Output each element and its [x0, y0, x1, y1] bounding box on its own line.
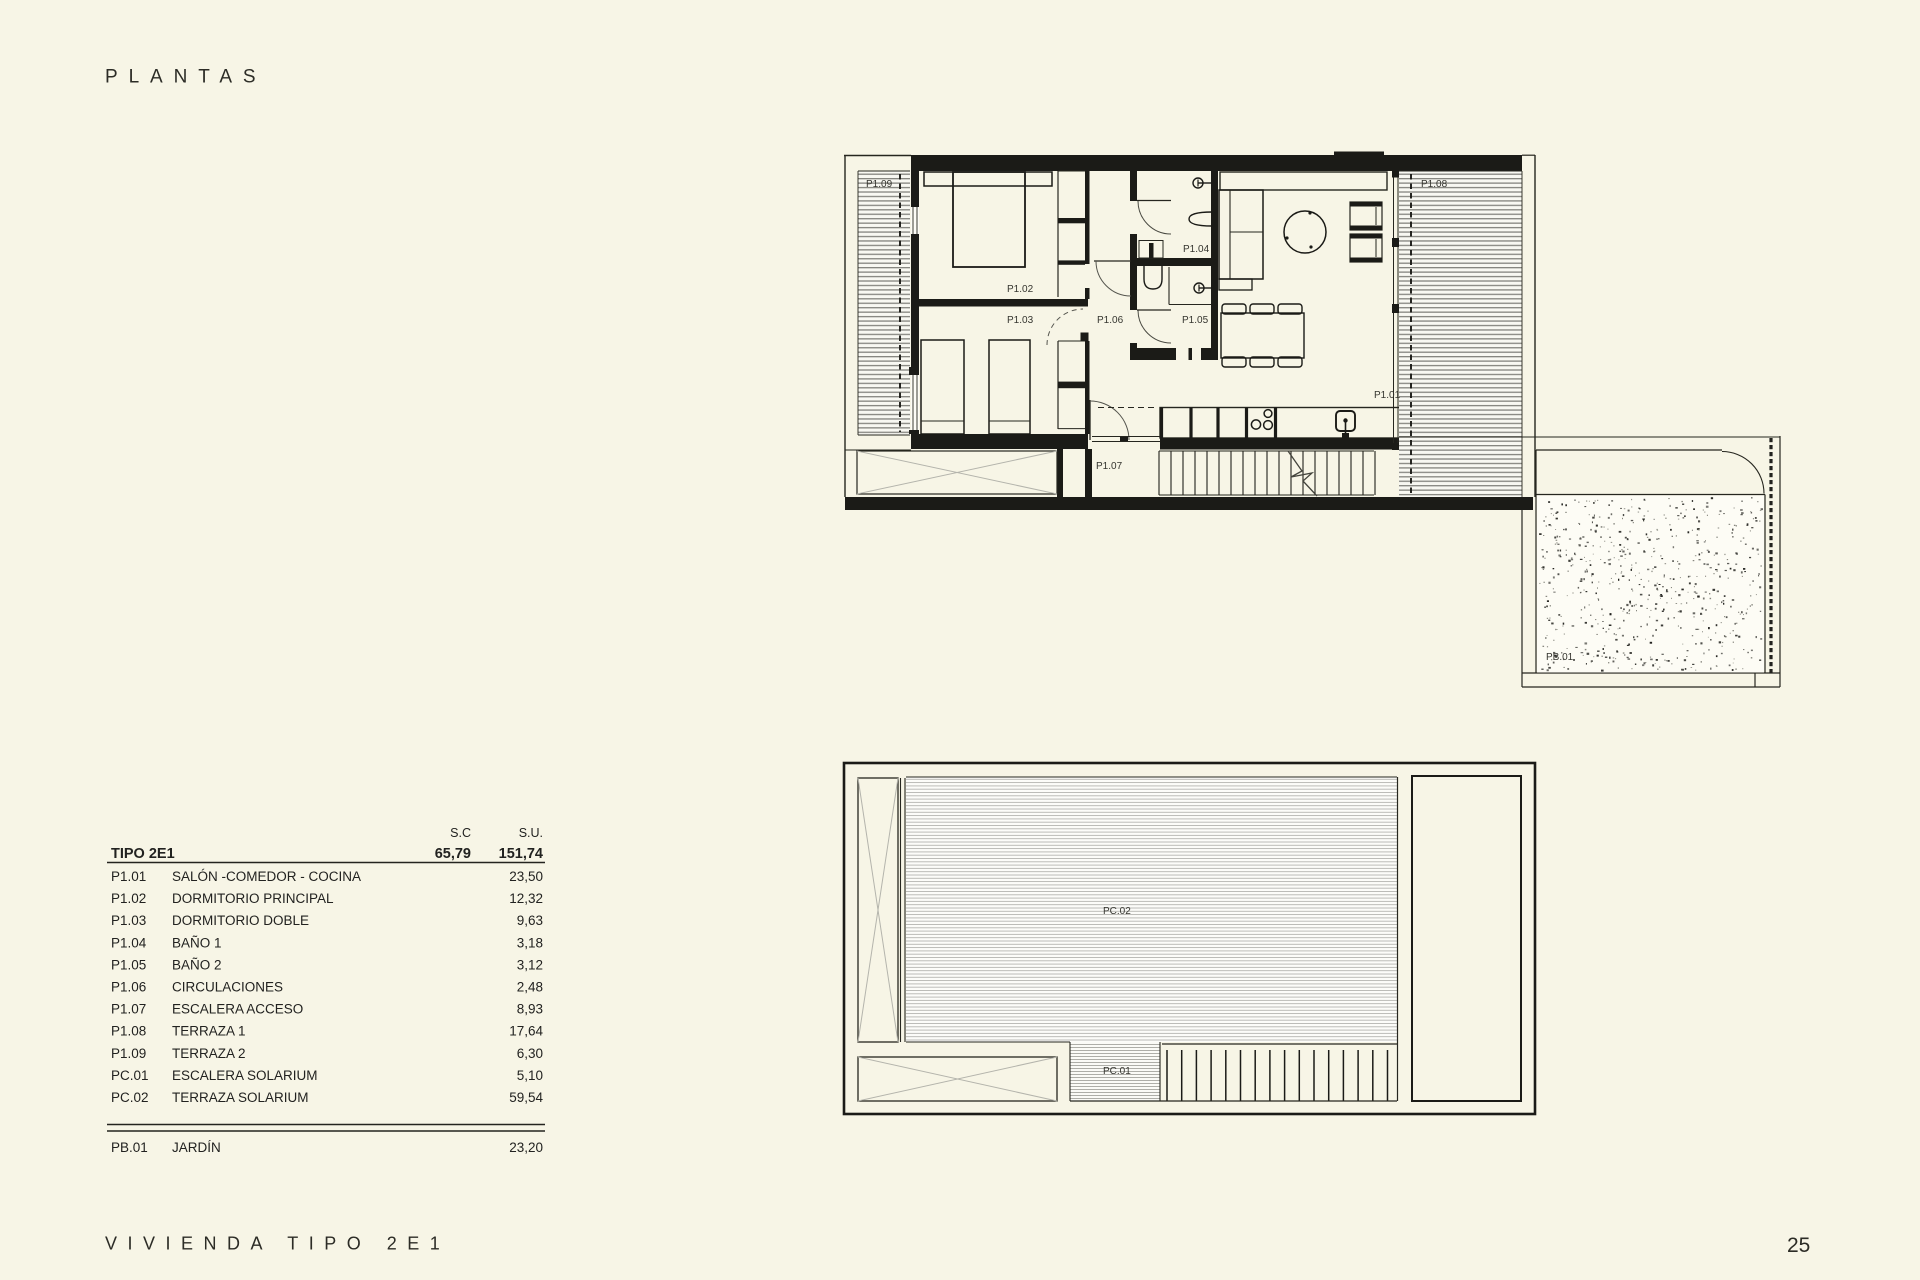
svg-text:BAÑO 2: BAÑO 2 [172, 957, 222, 972]
svg-text:9,63: 9,63 [517, 913, 543, 928]
svg-text:P1.05: P1.05 [1182, 315, 1209, 326]
svg-text:P1.06: P1.06 [1097, 315, 1124, 326]
svg-text:VIVIENDA TIPO 2E1: VIVIENDA TIPO 2E1 [105, 1234, 450, 1254]
svg-text:JARDÍN: JARDÍN [172, 1140, 221, 1155]
svg-text:6,30: 6,30 [517, 1046, 543, 1061]
svg-text:2,48: 2,48 [517, 980, 543, 995]
svg-text:TERRAZA SOLARIUM: TERRAZA SOLARIUM [172, 1090, 309, 1105]
svg-text:8,93: 8,93 [517, 1002, 543, 1017]
svg-text:P1.07: P1.07 [111, 1002, 146, 1017]
svg-text:23,50: 23,50 [509, 869, 543, 884]
svg-text:P1.04: P1.04 [111, 935, 147, 950]
svg-text:S.C: S.C [450, 826, 471, 840]
svg-text:CIRCULACIONES: CIRCULACIONES [172, 980, 283, 995]
svg-text:12,32: 12,32 [509, 891, 543, 906]
svg-text:25: 25 [1787, 1234, 1810, 1257]
svg-text:PB.01: PB.01 [1546, 652, 1574, 663]
svg-text:PC.01: PC.01 [111, 1068, 149, 1083]
svg-text:P1.03: P1.03 [1007, 315, 1034, 326]
svg-text:P1.09: P1.09 [111, 1046, 146, 1061]
svg-text:DORMITORIO PRINCIPAL: DORMITORIO PRINCIPAL [172, 891, 334, 906]
svg-text:P1.08: P1.08 [111, 1024, 146, 1039]
svg-text:P1.02: P1.02 [1007, 284, 1034, 295]
svg-text:P1.05: P1.05 [111, 957, 146, 972]
svg-text:P1.02: P1.02 [111, 891, 146, 906]
svg-text:P1.08: P1.08 [1421, 179, 1448, 190]
svg-text:3,12: 3,12 [517, 957, 543, 972]
svg-text:ESCALERA SOLARIUM: ESCALERA SOLARIUM [172, 1068, 318, 1083]
svg-text:5,10: 5,10 [517, 1068, 543, 1083]
svg-text:17,64: 17,64 [509, 1024, 543, 1039]
svg-text:BAÑO 1: BAÑO 1 [172, 935, 222, 950]
svg-text:SALÓN -COMEDOR - COCINA: SALÓN -COMEDOR - COCINA [172, 869, 361, 884]
svg-text:ESCALERA ACCESO: ESCALERA ACCESO [172, 1002, 303, 1017]
svg-text:P1.01: P1.01 [1374, 390, 1401, 401]
svg-text:151,74: 151,74 [499, 846, 543, 862]
svg-text:65,79: 65,79 [435, 846, 471, 862]
svg-text:PC.01: PC.01 [1103, 1066, 1131, 1077]
svg-text:P1.09: P1.09 [866, 179, 893, 190]
svg-text:PC.02: PC.02 [1103, 906, 1131, 917]
svg-text:TERRAZA 1: TERRAZA 1 [172, 1024, 246, 1039]
svg-text:S.U.: S.U. [519, 826, 543, 840]
svg-text:3,18: 3,18 [517, 935, 543, 950]
svg-text:PLANTAS: PLANTAS [105, 67, 266, 88]
svg-text:P1.07: P1.07 [1096, 461, 1123, 472]
svg-text:PC.02: PC.02 [111, 1090, 149, 1105]
svg-text:P1.01: P1.01 [111, 869, 146, 884]
svg-text:23,20: 23,20 [509, 1140, 543, 1155]
svg-text:P1.06: P1.06 [111, 980, 146, 995]
svg-text:P1.04: P1.04 [1183, 244, 1210, 255]
svg-text:59,54: 59,54 [509, 1090, 543, 1105]
svg-text:PB.01: PB.01 [111, 1140, 148, 1155]
svg-text:TERRAZA 2: TERRAZA 2 [172, 1046, 246, 1061]
svg-text:TIPO 2E1: TIPO 2E1 [111, 846, 175, 862]
svg-text:DORMITORIO DOBLE: DORMITORIO DOBLE [172, 913, 309, 928]
svg-text:P1.03: P1.03 [111, 913, 146, 928]
